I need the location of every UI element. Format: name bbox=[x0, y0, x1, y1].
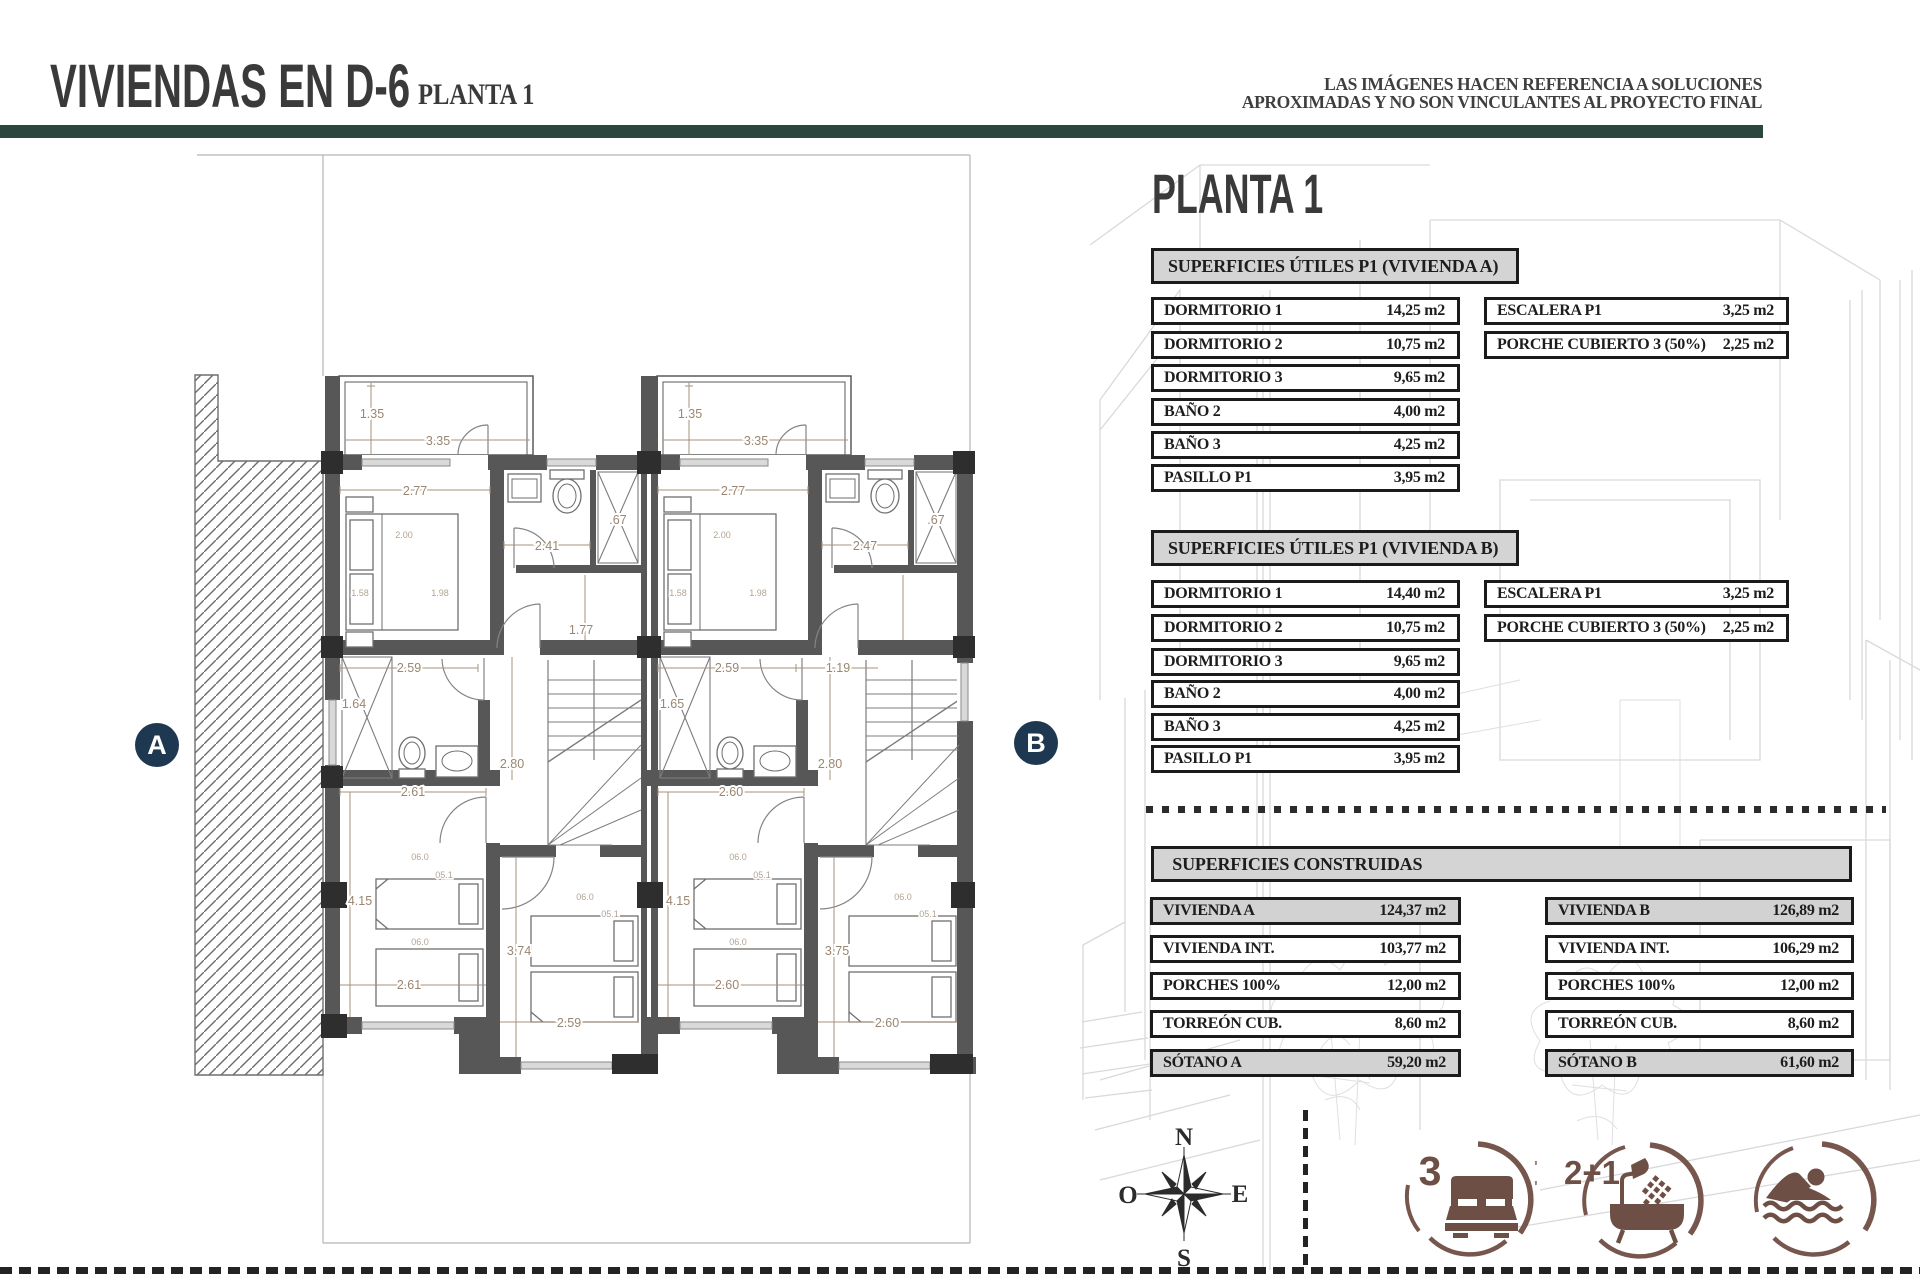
svg-text:4.15: 4.15 bbox=[348, 894, 372, 908]
svg-text:1.35: 1.35 bbox=[360, 407, 384, 421]
svg-text:2.61: 2.61 bbox=[397, 978, 421, 992]
svg-text:2.59: 2.59 bbox=[557, 1016, 581, 1030]
svg-text:4.15: 4.15 bbox=[666, 894, 690, 908]
svg-text:1.98: 1.98 bbox=[749, 588, 767, 598]
svg-text:3.35: 3.35 bbox=[426, 434, 450, 448]
svg-text:06.0: 06.0 bbox=[729, 852, 747, 862]
svg-text:2.77: 2.77 bbox=[721, 484, 745, 498]
svg-text:B: B bbox=[1026, 728, 1046, 758]
svg-text:2.59: 2.59 bbox=[715, 661, 739, 675]
svg-text:3.75: 3.75 bbox=[825, 944, 849, 958]
svg-text:2.80: 2.80 bbox=[818, 757, 842, 771]
svg-text:3.74: 3.74 bbox=[507, 944, 531, 958]
svg-text:06.0: 06.0 bbox=[729, 937, 747, 947]
svg-text:05.1: 05.1 bbox=[601, 909, 619, 919]
svg-text:05.1: 05.1 bbox=[753, 870, 771, 880]
svg-text:1.77: 1.77 bbox=[569, 623, 593, 637]
svg-text:06.0: 06.0 bbox=[411, 937, 429, 947]
svg-text:': ' bbox=[1534, 1179, 1538, 1196]
svg-text:1.58: 1.58 bbox=[351, 588, 369, 598]
svg-text:2.77: 2.77 bbox=[403, 484, 427, 498]
svg-text:2.59: 2.59 bbox=[397, 661, 421, 675]
svg-text:05.1: 05.1 bbox=[435, 870, 453, 880]
svg-text:.67: .67 bbox=[927, 513, 944, 527]
svg-text:1.65: 1.65 bbox=[660, 697, 684, 711]
svg-text:1.58: 1.58 bbox=[669, 588, 687, 598]
svg-text:2.47: 2.47 bbox=[853, 539, 877, 553]
svg-text:3.35: 3.35 bbox=[744, 434, 768, 448]
svg-text:2.60: 2.60 bbox=[875, 1016, 899, 1030]
svg-text:1.98: 1.98 bbox=[431, 588, 449, 598]
svg-text:E: E bbox=[1232, 1181, 1249, 1208]
svg-text:2.00: 2.00 bbox=[395, 530, 413, 540]
svg-text:2.61: 2.61 bbox=[401, 785, 425, 799]
svg-text:2.00: 2.00 bbox=[713, 530, 731, 540]
svg-text:05.1: 05.1 bbox=[919, 909, 937, 919]
svg-text:1.19: 1.19 bbox=[826, 661, 850, 675]
svg-text:06.0: 06.0 bbox=[576, 892, 594, 902]
svg-text:2.60: 2.60 bbox=[719, 785, 743, 799]
svg-text:2.80: 2.80 bbox=[500, 757, 524, 771]
svg-text:.67: .67 bbox=[609, 513, 626, 527]
svg-text:1.64: 1.64 bbox=[342, 697, 366, 711]
svg-text:1.35: 1.35 bbox=[678, 407, 702, 421]
svg-text:2+1: 2+1 bbox=[1565, 1154, 1620, 1191]
svg-text:O: O bbox=[1118, 1182, 1137, 1209]
svg-text:2.60: 2.60 bbox=[715, 978, 739, 992]
svg-text:06.0: 06.0 bbox=[894, 892, 912, 902]
svg-text:2.41: 2.41 bbox=[535, 539, 559, 553]
svg-text:06.0: 06.0 bbox=[411, 852, 429, 862]
svg-text:A: A bbox=[147, 730, 167, 760]
svg-text:N: N bbox=[1175, 1125, 1193, 1151]
svg-text:3: 3 bbox=[1419, 1148, 1442, 1194]
svg-text:': ' bbox=[1534, 1159, 1538, 1176]
